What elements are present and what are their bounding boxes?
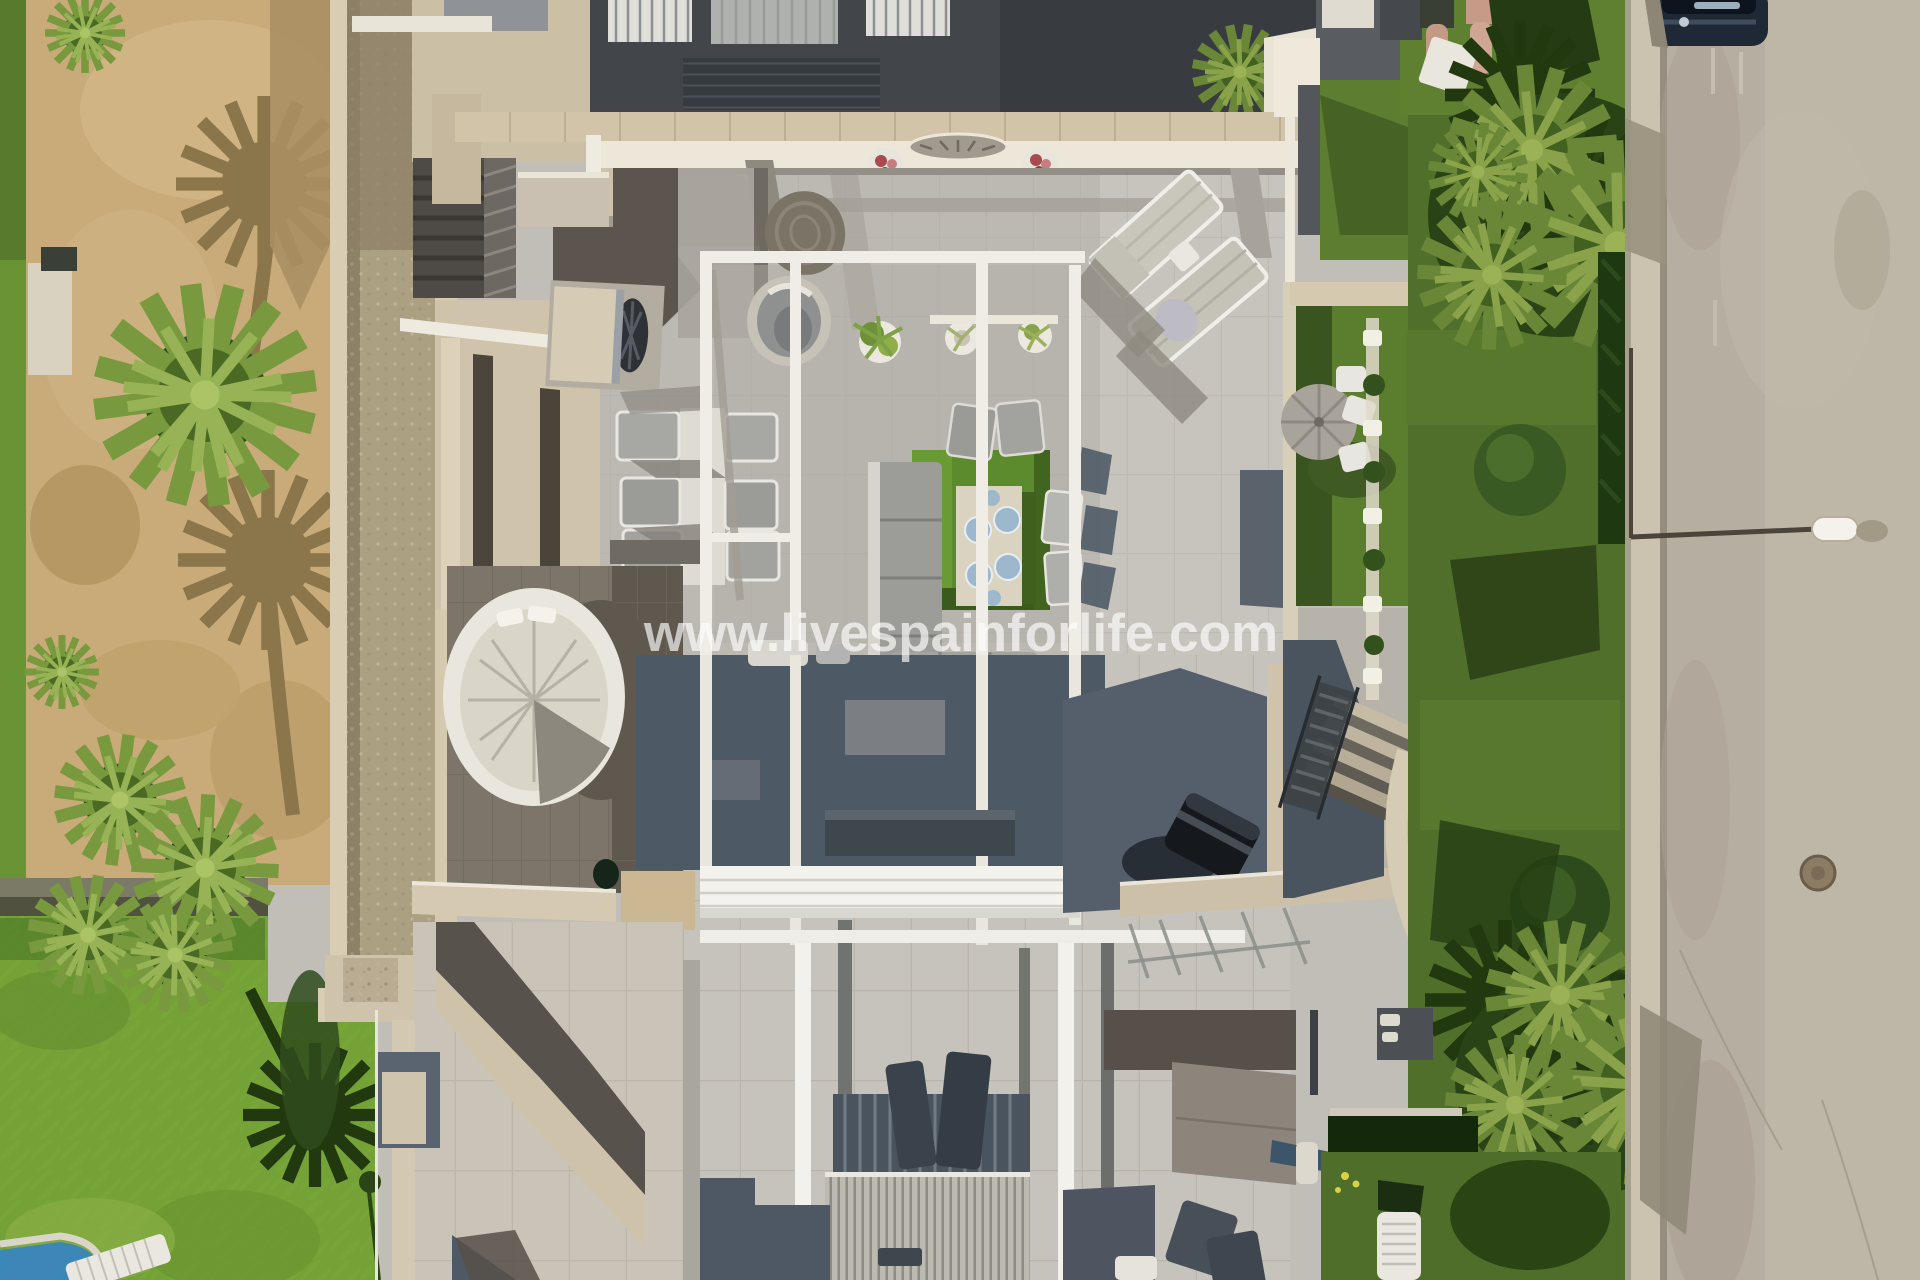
svg-text:www.livespainforlife.com: www.livespainforlife.com <box>643 604 1278 663</box>
